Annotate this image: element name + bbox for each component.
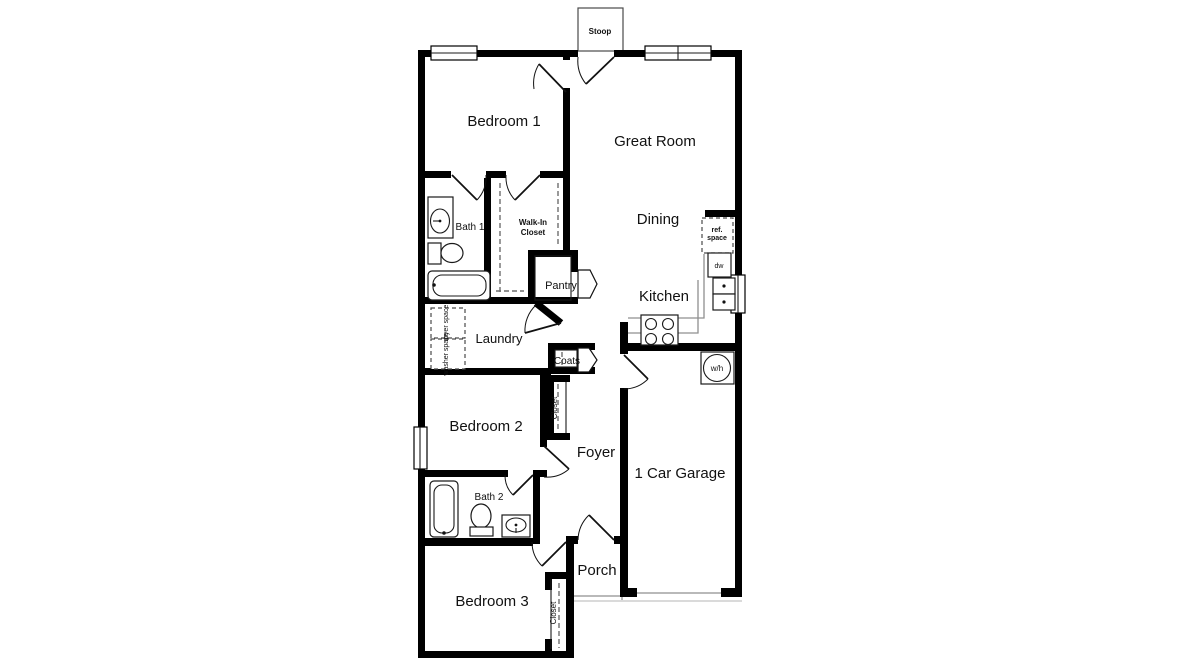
wall-segment xyxy=(528,250,535,304)
wall-segment xyxy=(705,210,735,217)
bedroom1-window xyxy=(431,46,477,60)
room-label-coats: Coats xyxy=(554,356,580,367)
water-heater-label: w/h xyxy=(710,364,723,373)
ref-space-label-line1: ref. xyxy=(712,227,723,234)
wall-segment xyxy=(735,50,742,597)
wall-segment xyxy=(721,588,742,597)
wall-segment xyxy=(571,250,578,272)
bath1-door-swing xyxy=(452,175,486,200)
wall-segment xyxy=(620,343,742,351)
bedroom2-window xyxy=(414,427,427,469)
wall-segment xyxy=(566,538,574,658)
wall-segment xyxy=(536,303,561,323)
room-label-bedroom-1: Bedroom 1 xyxy=(467,113,540,130)
great-room-window xyxy=(645,46,711,60)
range-icon xyxy=(641,315,678,345)
room-label-bedroom3-closet: Closet xyxy=(549,601,558,624)
bedroom3-door-swing xyxy=(532,542,566,566)
bath1-toilet-icon xyxy=(428,243,463,264)
room-label-garage: 1 Car Garage xyxy=(635,465,726,482)
dishwasher-label: dw xyxy=(715,263,725,270)
wall-segment xyxy=(540,375,547,447)
room-label-foyer: Foyer xyxy=(577,444,615,461)
bath2-bathtub-icon xyxy=(430,481,458,537)
wall-segment xyxy=(418,50,425,658)
ref-space-label-line2: space xyxy=(707,235,727,242)
wall-segment xyxy=(563,178,570,257)
room-label-great-room: Great Room xyxy=(614,133,696,150)
room-label-porch: Porch xyxy=(577,562,616,579)
room-label-stoop: Stoop xyxy=(589,27,612,36)
wall-segment xyxy=(533,470,540,544)
wall-segment xyxy=(486,171,506,178)
floor-plan-drawing: Stoop Bedroom 1 Great Room Dining Kitche… xyxy=(0,0,1182,665)
washer-space-label: washer space xyxy=(443,332,450,376)
kitchen-sink-icon xyxy=(713,278,735,310)
wall-segment xyxy=(620,388,628,597)
bath2-toilet-icon xyxy=(470,504,493,536)
wall-segment xyxy=(566,536,578,544)
bedroom1-door-swing xyxy=(534,64,566,92)
room-label-walk-in-closet-line2: Closet xyxy=(521,228,546,237)
room-label-kitchen: Kitchen xyxy=(639,288,689,305)
wall-segment xyxy=(418,538,533,546)
room-label-bedroom-3: Bedroom 3 xyxy=(455,593,528,610)
wall-segment xyxy=(563,50,570,60)
front-porch-door-swing xyxy=(578,515,614,540)
entry-door-swing xyxy=(578,57,614,84)
bath1-vanity-sink-icon xyxy=(428,197,453,238)
wall-segment xyxy=(540,171,570,178)
bath2-door-swing xyxy=(505,475,533,495)
wall-segment xyxy=(418,651,574,658)
room-label-walk-in-closet-line1: Walk-In xyxy=(519,218,547,227)
bath1-bathtub-icon xyxy=(428,271,490,300)
room-label-laundry: Laundry xyxy=(476,331,523,346)
bedroom2-door-swing xyxy=(544,446,569,477)
room-label-pantry: Pantry xyxy=(545,280,577,292)
pantry-door-icon xyxy=(578,270,597,298)
wall-segment xyxy=(545,572,574,579)
room-label-bath-2: Bath 2 xyxy=(475,492,504,503)
room-label-hall-closet: Closet xyxy=(550,396,559,419)
walk-in-closet-door-swing xyxy=(506,175,540,200)
room-label-bath-1: Bath 1 xyxy=(456,222,485,233)
wall-segment xyxy=(563,88,570,178)
room-label-dining: Dining xyxy=(637,211,680,228)
bath2-vanity-sink-icon xyxy=(502,515,530,537)
wall-segment xyxy=(418,470,508,477)
garage-service-door-swing xyxy=(624,355,648,389)
wall-segment xyxy=(418,171,451,178)
room-label-bedroom-2: Bedroom 2 xyxy=(449,418,522,435)
floor-plan: Stoop Bedroom 1 Great Room Dining Kitche… xyxy=(0,0,1182,665)
